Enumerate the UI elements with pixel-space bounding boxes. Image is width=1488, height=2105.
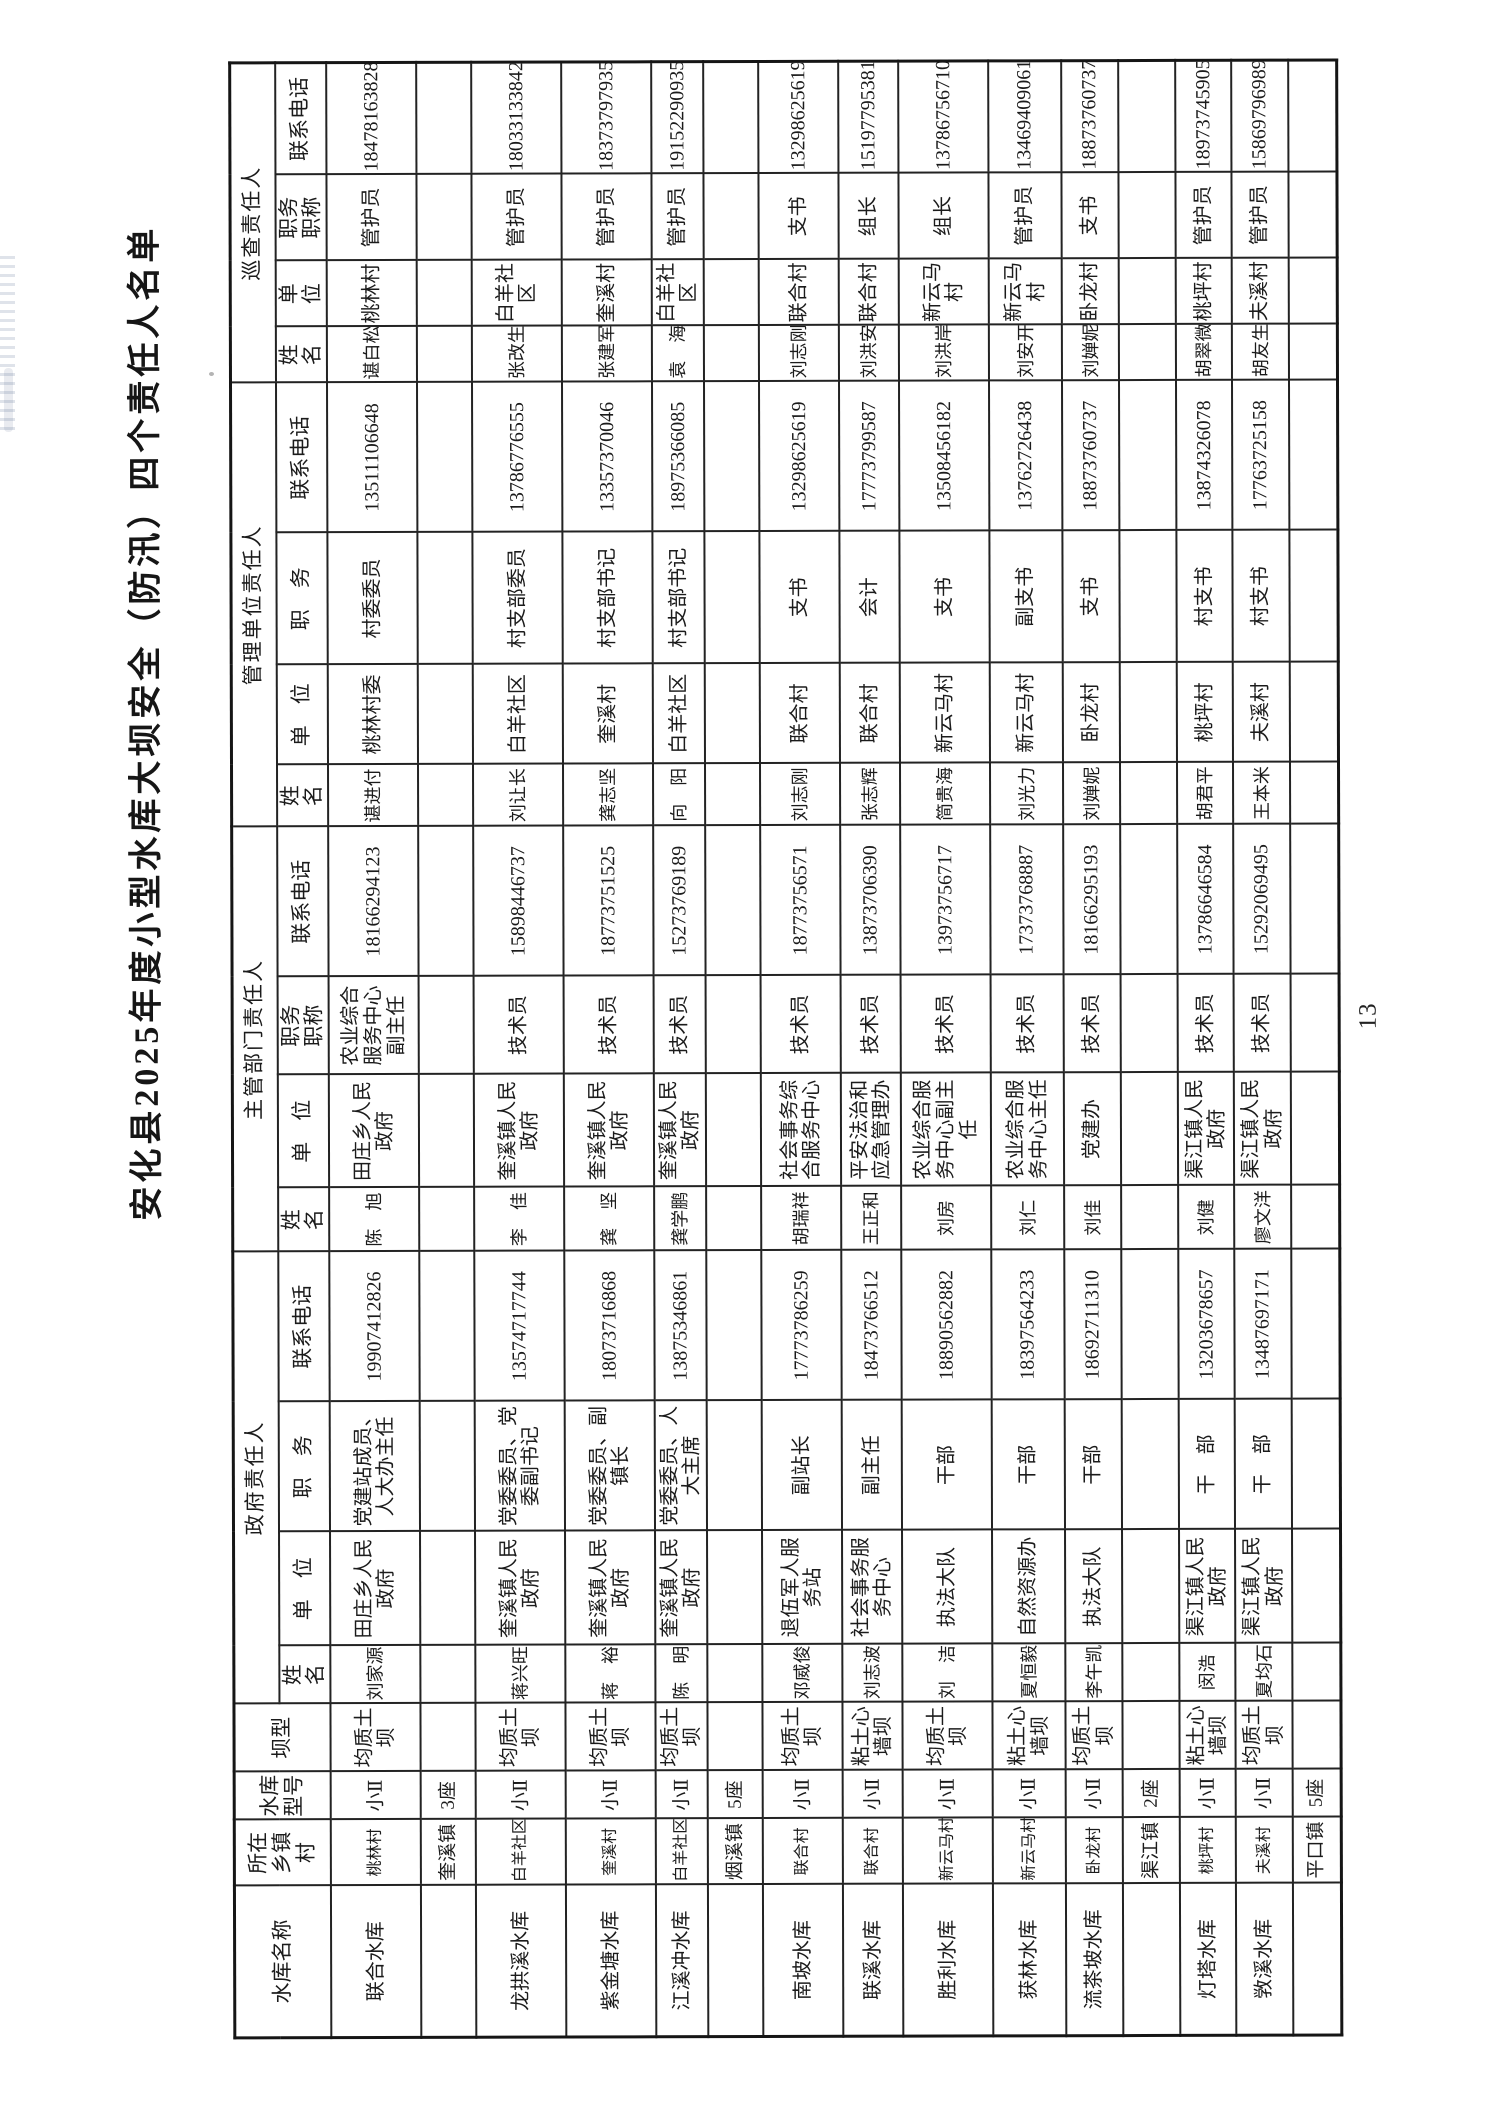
empty-cell	[704, 62, 759, 174]
table-cell: 15197795381	[839, 61, 899, 173]
empty-cell	[1122, 1399, 1179, 1529]
table-cell: 联合村	[763, 1818, 843, 1884]
empty-cell	[418, 664, 473, 764]
table-cell: 胡友生	[1232, 324, 1289, 380]
table-cell: 18373797935	[562, 62, 652, 174]
table-cell: 夫溪村	[1233, 662, 1290, 762]
empty-cell	[1289, 60, 1337, 172]
table-cell: 桃坪村	[1177, 662, 1233, 762]
table-cell: 龙拱溪水库	[476, 1885, 566, 2037]
table-cell: 15273769189	[654, 826, 706, 976]
table-cell: 管护员	[652, 174, 704, 260]
empty-cell	[1292, 1529, 1340, 1643]
table-cell: 13298625619	[759, 381, 839, 531]
table-cell: 18973745905	[1176, 60, 1232, 172]
table-cell: 副支书	[990, 531, 1063, 663]
table-cell: 管护员	[327, 174, 417, 260]
table-cell: 18873760737	[1062, 61, 1119, 173]
scan-artifact-smudge	[4, 368, 13, 432]
table-cell: 党建办	[1064, 1073, 1121, 1186]
subcolumn-header: 姓 名	[277, 765, 329, 827]
table-cell: 联合村	[839, 259, 899, 325]
table-cell: 胡瑞祥	[761, 1186, 841, 1250]
table-cell: 农业综合服务中心副主任	[901, 1073, 991, 1186]
table-cell: 刘婵妮	[1063, 763, 1120, 825]
table-cell: 技术员	[1064, 975, 1121, 1073]
table-cell: 粘土心墙坝	[843, 1702, 903, 1770]
table-cell: 联合村	[760, 663, 840, 763]
table-cell: 均质土坝	[903, 1702, 993, 1770]
table-cell: 谌白松	[327, 326, 417, 382]
table-cell: 粘土心墙坝	[1180, 1701, 1236, 1769]
table-cell: 奎溪村	[563, 664, 653, 764]
table-cell: 18166295193	[1064, 825, 1121, 975]
table-cell: 13786756710	[899, 61, 989, 173]
table-cell: 支书	[900, 531, 990, 663]
table-cell: 均质土坝	[1236, 1701, 1293, 1769]
table-cell: 18692711310	[1065, 1250, 1122, 1400]
table-cell: 13508456182	[899, 381, 989, 531]
table-cell: 13487697171	[1235, 1249, 1292, 1399]
table-cell: 均质土坝	[566, 1703, 656, 1771]
table-cell: 桃坪村	[1176, 258, 1232, 324]
scan-artifact-dot	[209, 372, 214, 376]
table-cell: 13973756717	[901, 825, 991, 975]
table-cell: 奎溪镇人民政府	[474, 1074, 564, 1187]
empty-cell	[1121, 1185, 1178, 1249]
table-cell: 小Ⅱ	[1236, 1769, 1293, 1817]
empty-cell	[419, 826, 474, 976]
township-group-row: 平口镇5座	[1289, 60, 1342, 2035]
table-cell: 刘光力	[990, 763, 1063, 825]
table-cell: 村支部书记	[653, 532, 705, 664]
table-cell: 均质土坝	[1066, 1702, 1123, 1770]
empty-cell	[417, 260, 472, 326]
table-cell: 小Ⅱ	[993, 1770, 1066, 1818]
table-cell: 刘志刚	[759, 325, 839, 381]
empty-cell	[1120, 662, 1177, 762]
column-header: 水库 型号	[234, 1772, 331, 1820]
column-header: 坝型	[234, 1704, 331, 1772]
empty-cell	[706, 1074, 761, 1187]
subcolumn-header: 职务 职称	[277, 977, 329, 1075]
table-cell: 15898446737	[474, 826, 564, 976]
table-cell: 平安法治和应急管理办	[841, 1073, 901, 1186]
township-group-row: 烟溪镇5座	[704, 62, 764, 2037]
table-cell: 渠江镇人民政府	[1235, 1529, 1292, 1643]
empty-cell	[1121, 974, 1178, 1072]
empty-cell	[420, 1401, 475, 1531]
table-cell: 技术员	[474, 976, 564, 1074]
empty-cell	[417, 174, 472, 260]
table-cell: 流茶坡水库	[1066, 1884, 1123, 2036]
empty-cell	[417, 326, 472, 382]
table-cell: 向 阳	[653, 764, 705, 826]
table-cell: 自然资源办	[992, 1530, 1065, 1644]
reservoir-row: 流茶坡水库卧龙村小Ⅱ均质土坝李午凯执法大队干部18692711310刘佳党建办技…	[1062, 61, 1124, 2036]
empty-cell	[1291, 974, 1339, 1072]
table-cell: 新云马村	[900, 663, 990, 763]
township-name: 平口镇	[1293, 1817, 1341, 1883]
table-cell: 刘家源	[331, 1645, 421, 1703]
table-cell: 李午凯	[1066, 1644, 1123, 1702]
empty-cell	[419, 976, 474, 1074]
responsibility-table: 水库名称所在 乡镇村水库 型号坝型政府责任人主管部门责任人管理单位责任人巡查责任…	[228, 58, 1343, 2039]
township-name: 奎溪镇	[421, 1819, 476, 1885]
empty-cell	[420, 1251, 475, 1401]
table-cell: 刘洪岸	[899, 325, 989, 381]
empty-cell	[1293, 1643, 1341, 1701]
reservoir-row: 胜利水库新云马村小Ⅱ均质土坝刘 洁执法大队干部18890562882刘房农业综合…	[899, 61, 994, 2036]
table-cell: 15869796989	[1232, 60, 1289, 172]
empty-cell	[1291, 1185, 1339, 1249]
table-cell: 均质土坝	[476, 1703, 566, 1771]
table-cell: 组长	[839, 173, 899, 259]
reservoir-row: 联合水库桃林村小Ⅱ均质土坝刘家源田庄乡人民政府党建站成员、人大办主任199074…	[327, 62, 422, 2037]
table-cell: 紫金塘水库	[566, 1885, 656, 2037]
table-cell: 18073716868	[565, 1251, 655, 1401]
table-cell: 小Ⅱ	[566, 1771, 656, 1819]
table-cell: 王本米	[1233, 762, 1290, 824]
table-cell: 13786776555	[472, 382, 562, 532]
table-cell: 18033133842	[472, 62, 562, 174]
subcolumn-header: 单 位	[275, 261, 327, 327]
table-cell: 小Ⅱ	[476, 1771, 566, 1819]
empty-cell	[705, 664, 760, 764]
table-cell: 夏均石	[1236, 1643, 1293, 1701]
table-cell: 南坡水库	[763, 1884, 843, 2036]
subcolumn-header: 姓 名	[275, 327, 327, 383]
table-cell: 桃林村	[327, 260, 417, 326]
subcolumn-header: 职 务	[278, 1402, 330, 1532]
table-cell: 陈 旭	[329, 1187, 419, 1251]
table-cell: 技术员	[901, 975, 991, 1073]
empty-cell	[1119, 60, 1176, 172]
table-cell: 13357370046	[562, 382, 652, 532]
table-cell: 龚志坚	[563, 764, 653, 826]
table-cell: 联溪水库	[843, 1884, 903, 2036]
table-cell: 干部	[992, 1400, 1065, 1530]
table-cell: 夏恒毅	[993, 1644, 1066, 1702]
table-cell: 农业综合服务中心副主任	[329, 976, 419, 1074]
table-cell: 新云马村	[990, 663, 1063, 763]
empty-cell	[417, 382, 472, 532]
table-cell: 奎溪村	[566, 1819, 656, 1885]
empty-cell	[1289, 380, 1337, 530]
table-cell: 刘 洁	[903, 1644, 993, 1702]
table-cell: 执法大队	[902, 1530, 992, 1644]
table-cell: 村支书	[1177, 530, 1233, 662]
table-cell: 社会事务服务中心	[842, 1530, 902, 1644]
table-cell: 白羊社区	[473, 664, 563, 764]
empty-cell	[707, 1531, 762, 1645]
table-cell: 18473766512	[842, 1250, 902, 1400]
table-cell: 小Ⅱ	[843, 1770, 903, 1818]
table-cell: 刘佳	[1064, 1186, 1121, 1250]
reservoir-count: 2座	[1123, 1769, 1180, 1817]
table-cell: 18975366085	[652, 382, 704, 532]
table-cell: 副主任	[842, 1400, 902, 1530]
empty-cell	[708, 1885, 763, 2037]
table-cell: 联合村	[759, 259, 839, 325]
document-title: 安化县2025年度小型水库大坝安全（防汛）四个责任人名单	[117, 225, 169, 1221]
empty-cell	[421, 1703, 476, 1771]
table-cell: 新云马村	[989, 259, 1062, 325]
table-cell: 卧龙村	[1062, 259, 1119, 325]
table-cell: 刘仁	[991, 1186, 1064, 1250]
table-cell: 奎溪镇人民政府	[475, 1531, 565, 1645]
table-cell: 管护员	[1232, 172, 1289, 258]
table-cell: 管护员	[989, 173, 1062, 259]
empty-cell	[1123, 1883, 1180, 2035]
empty-cell	[706, 976, 761, 1074]
table-cell: 13203678657	[1179, 1249, 1235, 1399]
empty-cell	[706, 1187, 761, 1251]
empty-cell	[1123, 1643, 1180, 1701]
table-cell: 白羊社区	[652, 260, 704, 326]
table-cell: 技术员	[564, 976, 654, 1074]
table-cell: 18773756571	[761, 825, 841, 975]
page-number: 13	[1355, 1002, 1383, 1029]
subcolumn-header: 单 位	[279, 1532, 331, 1646]
reservoir-row: 灯塔水库桃坪村小Ⅱ粘土心墙坝闵浩渠江镇人民政府干 部13203678657刘健渠…	[1176, 60, 1237, 2035]
table-cell: 刘房	[901, 1186, 991, 1250]
table-cell: 闵浩	[1180, 1643, 1236, 1701]
table-cell: 社会事务综合服务中心	[761, 1073, 841, 1186]
table-cell: 刘志刚	[760, 763, 840, 825]
subcolumn-header: 联系电话	[276, 383, 328, 533]
table-cell: 支书	[1062, 173, 1119, 259]
table-cell: 胜利水库	[903, 1884, 993, 2036]
reservoir-row: 获林水库新云马村小Ⅱ粘土心墙坝夏恒毅自然资源办干部18397564233刘仁农业…	[989, 61, 1067, 2036]
table-cell: 农业综合服务中心主任	[991, 1073, 1064, 1186]
reservoir-row: 敩溪水库夫溪村小Ⅱ均质土坝夏均石渠江镇人民政府干 部13487697171廖文洋…	[1232, 60, 1294, 2035]
table-cell: 渠江镇人民政府	[1234, 1072, 1291, 1185]
table-cell: 廖文洋	[1234, 1185, 1291, 1249]
empty-cell	[417, 62, 472, 174]
group-header: 主管部门责任人	[232, 827, 278, 1252]
table-cell: 张改生	[472, 326, 562, 382]
table-cell: 13469409061	[989, 61, 1062, 173]
table-cell: 17763725158	[1232, 380, 1289, 530]
table-cell: 干 部	[1179, 1399, 1235, 1529]
table-header: 水库名称所在 乡镇村水库 型号坝型政府责任人主管部门责任人管理单位责任人巡查责任…	[230, 63, 332, 2038]
empty-cell	[704, 326, 759, 382]
reservoir-count: 5座	[1293, 1769, 1341, 1817]
header-row-groups: 水库名称所在 乡镇村水库 型号坝型政府责任人主管部门责任人管理单位责任人巡查责任…	[230, 63, 280, 2038]
empty-cell	[421, 1885, 476, 2037]
table-cell: 干部	[902, 1400, 992, 1530]
table-cell: 支书	[1063, 531, 1120, 663]
table-cell: 白羊社区	[653, 664, 705, 764]
table-cell: 组长	[899, 173, 989, 259]
empty-cell	[1292, 1249, 1340, 1399]
empty-cell	[708, 1645, 763, 1703]
table-cell: 桃林村委	[328, 664, 418, 764]
column-header: 水库名称	[234, 1886, 331, 2038]
table-cell: 均质土坝	[656, 1703, 708, 1771]
table-cell: 小Ⅱ	[656, 1771, 708, 1819]
table-cell: 党委委员、副镇长	[565, 1401, 655, 1531]
table-cell: 龚 坚	[564, 1187, 654, 1251]
group-header: 管理单位责任人	[231, 383, 277, 827]
table-cell: 王正和	[841, 1186, 901, 1250]
reservoir-row: 江溪冲水库白羊社区小Ⅱ均质土坝陈 明奎溪镇人民政府党委委员、人大主席138753…	[652, 62, 709, 2037]
subcolumn-header: 联系电话	[277, 827, 329, 977]
group-header: 政府责任人	[233, 1252, 279, 1704]
table-cell: 夫溪村	[1236, 1817, 1293, 1883]
empty-cell	[708, 1703, 763, 1771]
table-cell: 执法大队	[1065, 1530, 1122, 1644]
table-cell: 李 佳	[474, 1187, 564, 1251]
township-group-row: 奎溪镇3座	[417, 62, 477, 2037]
table-cell: 奎溪村	[562, 260, 652, 326]
table-cell: 卧龙村	[1063, 663, 1120, 763]
table-cell: 卧龙村	[1066, 1818, 1123, 1884]
subcolumn-header: 单 位	[276, 665, 328, 765]
table-cell: 粘土心墙坝	[993, 1702, 1066, 1770]
table-cell: 干 部	[1235, 1399, 1292, 1529]
table-cell: 村委委员	[328, 532, 418, 664]
table-cell: 小Ⅱ	[763, 1770, 843, 1818]
table-cell: 袁 海	[652, 326, 704, 382]
empty-cell	[1292, 1399, 1340, 1529]
empty-cell	[1120, 530, 1177, 662]
table-cell: 管护员	[1176, 172, 1232, 258]
table-cell: 19907412826	[330, 1251, 420, 1401]
table-cell: 渠江镇人民政府	[1178, 1072, 1234, 1185]
table-cell: 简贵海	[900, 763, 990, 825]
table-cell: 技术员	[1234, 974, 1291, 1072]
table-cell: 张志辉	[840, 763, 900, 825]
table-cell: 副站长	[762, 1400, 842, 1530]
table-cell: 13762726438	[989, 381, 1062, 531]
table-cell: 小Ⅱ	[331, 1771, 421, 1819]
table-cell: 陈 明	[656, 1645, 708, 1703]
empty-cell	[421, 1645, 476, 1703]
empty-cell	[705, 532, 760, 664]
table-cell: 13511106648	[327, 382, 417, 532]
table-cell: 奎溪镇人民政府	[564, 1074, 654, 1187]
subcolumn-header: 联系电话	[278, 1252, 330, 1402]
group-header: 巡查责任人	[230, 63, 276, 383]
empty-cell	[1119, 172, 1176, 258]
table-cell: 技术员	[991, 975, 1064, 1073]
table-cell: 蒋 裕	[566, 1645, 656, 1703]
table-cell: 党建站成员、人大办主任	[330, 1401, 420, 1531]
reservoir-row: 南坡水库联合村小Ⅱ均质土坝邓威俊退伍军人服务站副站长17773786259胡瑞祥…	[759, 61, 844, 2036]
subcolumn-header: 姓 名	[279, 1646, 331, 1704]
table-cell: 白羊社区	[656, 1819, 708, 1885]
empty-cell	[1121, 824, 1178, 974]
table-cell: 18773751525	[564, 826, 654, 976]
table-cell: 村支书	[1233, 530, 1290, 662]
table-cell: 白羊社区	[472, 260, 562, 326]
table-cell: 刘婵妮	[1062, 325, 1119, 381]
table-cell: 13875346861	[655, 1251, 707, 1401]
table-cell: 白羊社区	[476, 1819, 566, 1885]
table-cell: 18397564233	[992, 1250, 1065, 1400]
table-cell: 管护员	[562, 174, 652, 260]
table-cell: 17773799587	[839, 381, 899, 531]
table-cell: 13574717744	[475, 1251, 565, 1401]
township-group-row: 渠江镇2座	[1119, 60, 1181, 2035]
table-cell: 胡翠微	[1176, 324, 1232, 380]
reservoir-row: 龙拱溪水库白羊社区小Ⅱ均质土坝蒋兴旺奎溪镇人民政府党委委员、党委副书记13574…	[472, 62, 567, 2037]
table-cell: 新云马村	[993, 1818, 1066, 1884]
table-cell: 桃林村	[331, 1819, 421, 1885]
reservoir-count: 3座	[421, 1771, 476, 1819]
table-cell: 18478163828	[327, 62, 417, 174]
empty-cell	[1291, 824, 1339, 974]
table-cell: 小Ⅱ	[903, 1770, 993, 1818]
empty-cell	[1122, 1529, 1179, 1643]
table-cell: 江溪冲水库	[656, 1885, 708, 2037]
empty-cell	[418, 532, 473, 664]
table-cell: 刘健	[1178, 1185, 1234, 1249]
table-cell: 联合村	[843, 1818, 903, 1884]
table-body: 联合水库桃林村小Ⅱ均质土坝刘家源田庄乡人民政府党建站成员、人大办主任199074…	[327, 60, 1342, 2038]
empty-cell	[707, 1251, 762, 1401]
reservoir-count: 5座	[708, 1771, 763, 1819]
township-name: 渠江镇	[1123, 1817, 1180, 1883]
table-cell: 支书	[759, 173, 839, 259]
table-cell: 获林水库	[993, 1884, 1066, 2036]
subcolumn-header: 单 位	[277, 1075, 329, 1188]
table-cell: 19152290935	[652, 62, 704, 174]
table-cell: 党委委员、党委副书记	[475, 1401, 565, 1531]
table-cell: 13298625619	[759, 61, 839, 173]
table-cell: 新云马村	[903, 1818, 993, 1884]
table-cell: 胡君平	[1177, 762, 1233, 824]
table-cell: 退伍军人服务站	[762, 1530, 842, 1644]
table-cell: 联合水库	[331, 1885, 421, 2037]
empty-cell	[707, 1401, 762, 1531]
empty-cell	[1119, 258, 1176, 324]
empty-cell	[705, 764, 760, 826]
subcolumn-header: 姓 名	[278, 1188, 330, 1252]
column-header: 所在 乡镇村	[234, 1820, 331, 1886]
table-cell: 技术员	[654, 976, 706, 1074]
table-cell: 均质土坝	[331, 1703, 421, 1771]
table-cell: 13873706390	[841, 825, 901, 975]
table-cell: 刘洪安	[839, 325, 899, 381]
table-cell: 夫溪村	[1232, 258, 1289, 324]
empty-cell	[1289, 172, 1337, 258]
table-cell: 刘安开	[989, 325, 1062, 381]
table-cell: 敩溪水库	[1236, 1883, 1293, 2035]
empty-cell	[704, 260, 759, 326]
empty-cell	[1289, 324, 1337, 380]
table-cell: 15292069495	[1234, 824, 1291, 974]
empty-cell	[1119, 380, 1176, 530]
table-cell: 新云马村	[899, 259, 989, 325]
table-cell: 张建军	[562, 326, 652, 382]
empty-cell	[419, 1074, 474, 1187]
empty-cell	[1293, 1883, 1341, 2035]
table-cell: 均质土坝	[763, 1702, 843, 1770]
scanned-document-page: { "page": { "title": "安化县2025年度小型水库大坝安全（…	[0, 0, 1488, 2105]
empty-cell	[704, 382, 759, 532]
empty-cell	[1290, 762, 1338, 824]
empty-cell	[1290, 662, 1338, 762]
empty-cell	[1119, 324, 1176, 380]
table-cell: 18873760737	[1062, 381, 1119, 531]
table-cell: 支书	[760, 531, 840, 663]
table-cell: 小Ⅱ	[1066, 1770, 1123, 1818]
table-cell: 13786646584	[1178, 824, 1234, 974]
reservoir-row: 紫金塘水库奎溪村小Ⅱ均质土坝蒋 裕奎溪镇人民政府党委委员、副镇长18073716…	[562, 62, 657, 2037]
